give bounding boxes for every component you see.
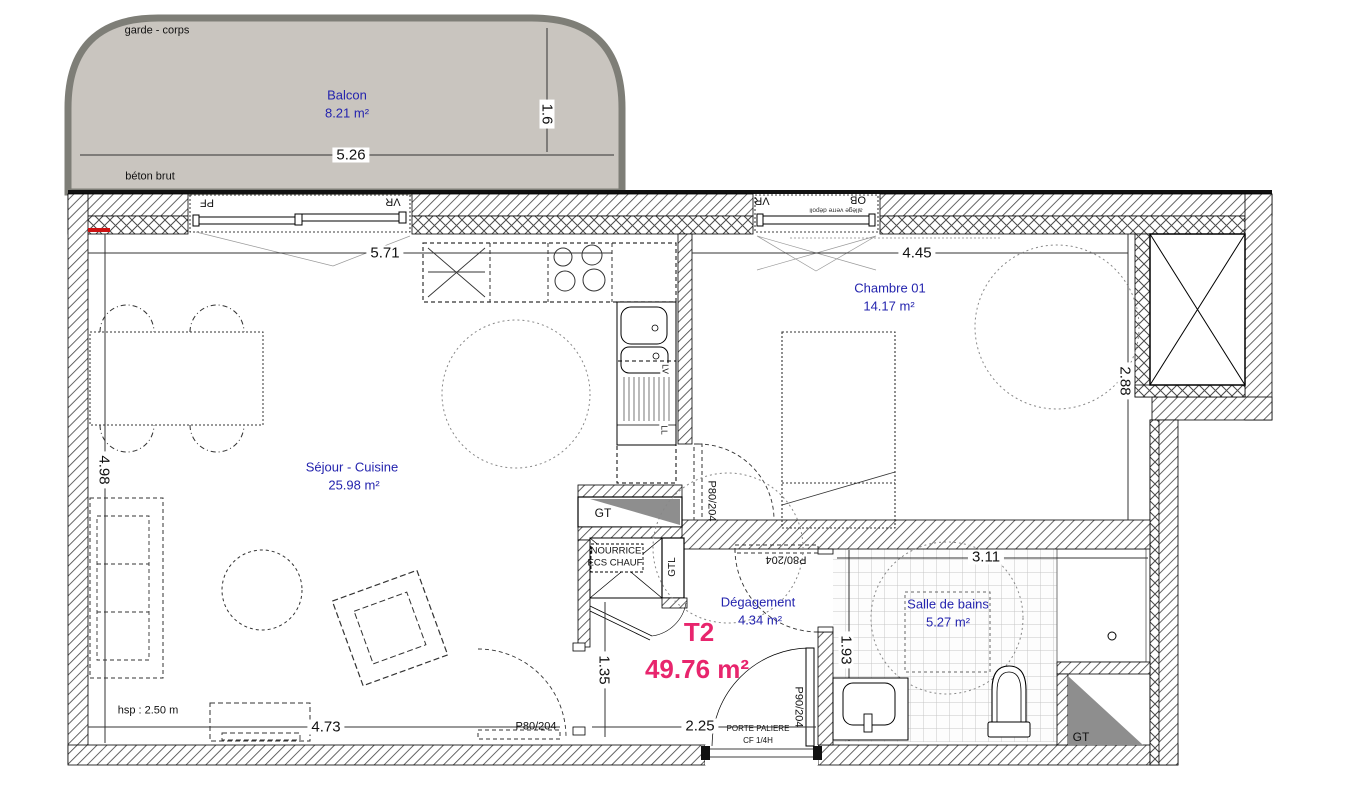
dining-table — [90, 305, 263, 452]
tv-unit — [210, 703, 310, 741]
lv-label: LV — [661, 363, 670, 375]
window-ob-label: OB — [850, 194, 866, 205]
nourrice-label-2: ECS CHAUF — [588, 558, 643, 568]
chair-icon — [100, 305, 154, 332]
nourrice-label-1: NOURRICE — [591, 546, 642, 556]
turning-circle-sejour — [442, 320, 590, 468]
dim-sejour-width: 5.71 — [366, 246, 403, 261]
chair-icon — [190, 425, 244, 452]
kitchen-counter — [423, 243, 676, 302]
window-vr-chambre-label: VR — [754, 195, 769, 206]
gt-label-2: GT — [1073, 731, 1090, 743]
coffee-table — [222, 550, 302, 630]
fridge-icon — [428, 248, 485, 297]
porte-paliere-label: PORTE PALIERE — [727, 725, 790, 733]
sofa — [90, 498, 163, 678]
room-area-sdb: 5.27 m² — [926, 616, 970, 629]
dim-sdb-height: 1.93 — [839, 631, 854, 668]
tap-icon — [864, 714, 872, 732]
chair-icon — [190, 305, 244, 332]
dim-sdb-width: 3.11 — [968, 550, 1004, 565]
room-name-chambre: Chambre 01 — [854, 282, 926, 295]
kitchen-sink-strip — [617, 302, 676, 483]
apartment-total-area: 49.76 m² — [645, 656, 749, 682]
porte-paliere-cf-label: CF 1/4H — [743, 737, 773, 745]
bed — [782, 332, 895, 528]
room-area-chambre: 14.17 m² — [863, 300, 914, 313]
dim-chambre-width: 4.45 — [898, 246, 935, 261]
washbasin — [833, 678, 908, 740]
dim-sejour-height: 4.98 — [97, 451, 112, 488]
garde-corps-label: garde - corps — [125, 26, 190, 37]
floor-plan-page: garde - corps Balcon 8.21 m² 5.26 1.6 bé… — [0, 0, 1358, 800]
door-label-sdb: P80/204 — [766, 554, 807, 565]
dim-passage: 1.35 — [597, 651, 612, 688]
dim-balcon-width: 5.26 — [332, 148, 369, 163]
armchair — [332, 570, 447, 685]
window-vr-sejour-label: VR — [385, 196, 400, 207]
window-pf-label: PF — [200, 197, 214, 208]
hsp-label: hsp : 2.50 m — [118, 706, 179, 717]
door-label-chambre: P80/204 — [706, 481, 717, 522]
room-name-balcon: Balcon — [327, 89, 367, 102]
beton-brut-label: béton brut — [125, 172, 175, 183]
dim-chambre-height: 2.88 — [1118, 362, 1133, 399]
turning-circle-chambre — [975, 245, 1139, 409]
room-name-sdb: Salle de bains — [907, 598, 989, 611]
door-label-sejour: P80/204 — [516, 722, 557, 733]
chair-icon — [100, 425, 154, 452]
door-label-entree: P90/204 — [793, 687, 804, 728]
shower-drain-icon — [1108, 632, 1116, 640]
gtl-label: GTL — [668, 557, 678, 576]
dim-entree-width: 2.25 — [681, 719, 718, 734]
ll-label: LL — [660, 424, 669, 435]
dim-balcon-depth: 1.6 — [540, 100, 555, 129]
dim-sejour-bottom: 4.73 — [307, 720, 344, 735]
room-name-degagement: Dégagement — [721, 596, 795, 609]
red-mark — [88, 228, 110, 232]
room-area-degagement: 4.34 m² — [738, 614, 782, 627]
apartment-type-label: T2 — [684, 619, 714, 645]
toilet — [988, 666, 1030, 737]
room-area-balcon: 8.21 m² — [325, 107, 369, 120]
allege-label: allège verre dépoli — [809, 206, 862, 213]
cooktop-icon — [554, 245, 605, 291]
gt-label-1: GT — [595, 507, 612, 519]
room-area-sejour: 25.98 m² — [328, 479, 379, 492]
room-name-sejour: Séjour - Cuisine — [306, 461, 399, 474]
